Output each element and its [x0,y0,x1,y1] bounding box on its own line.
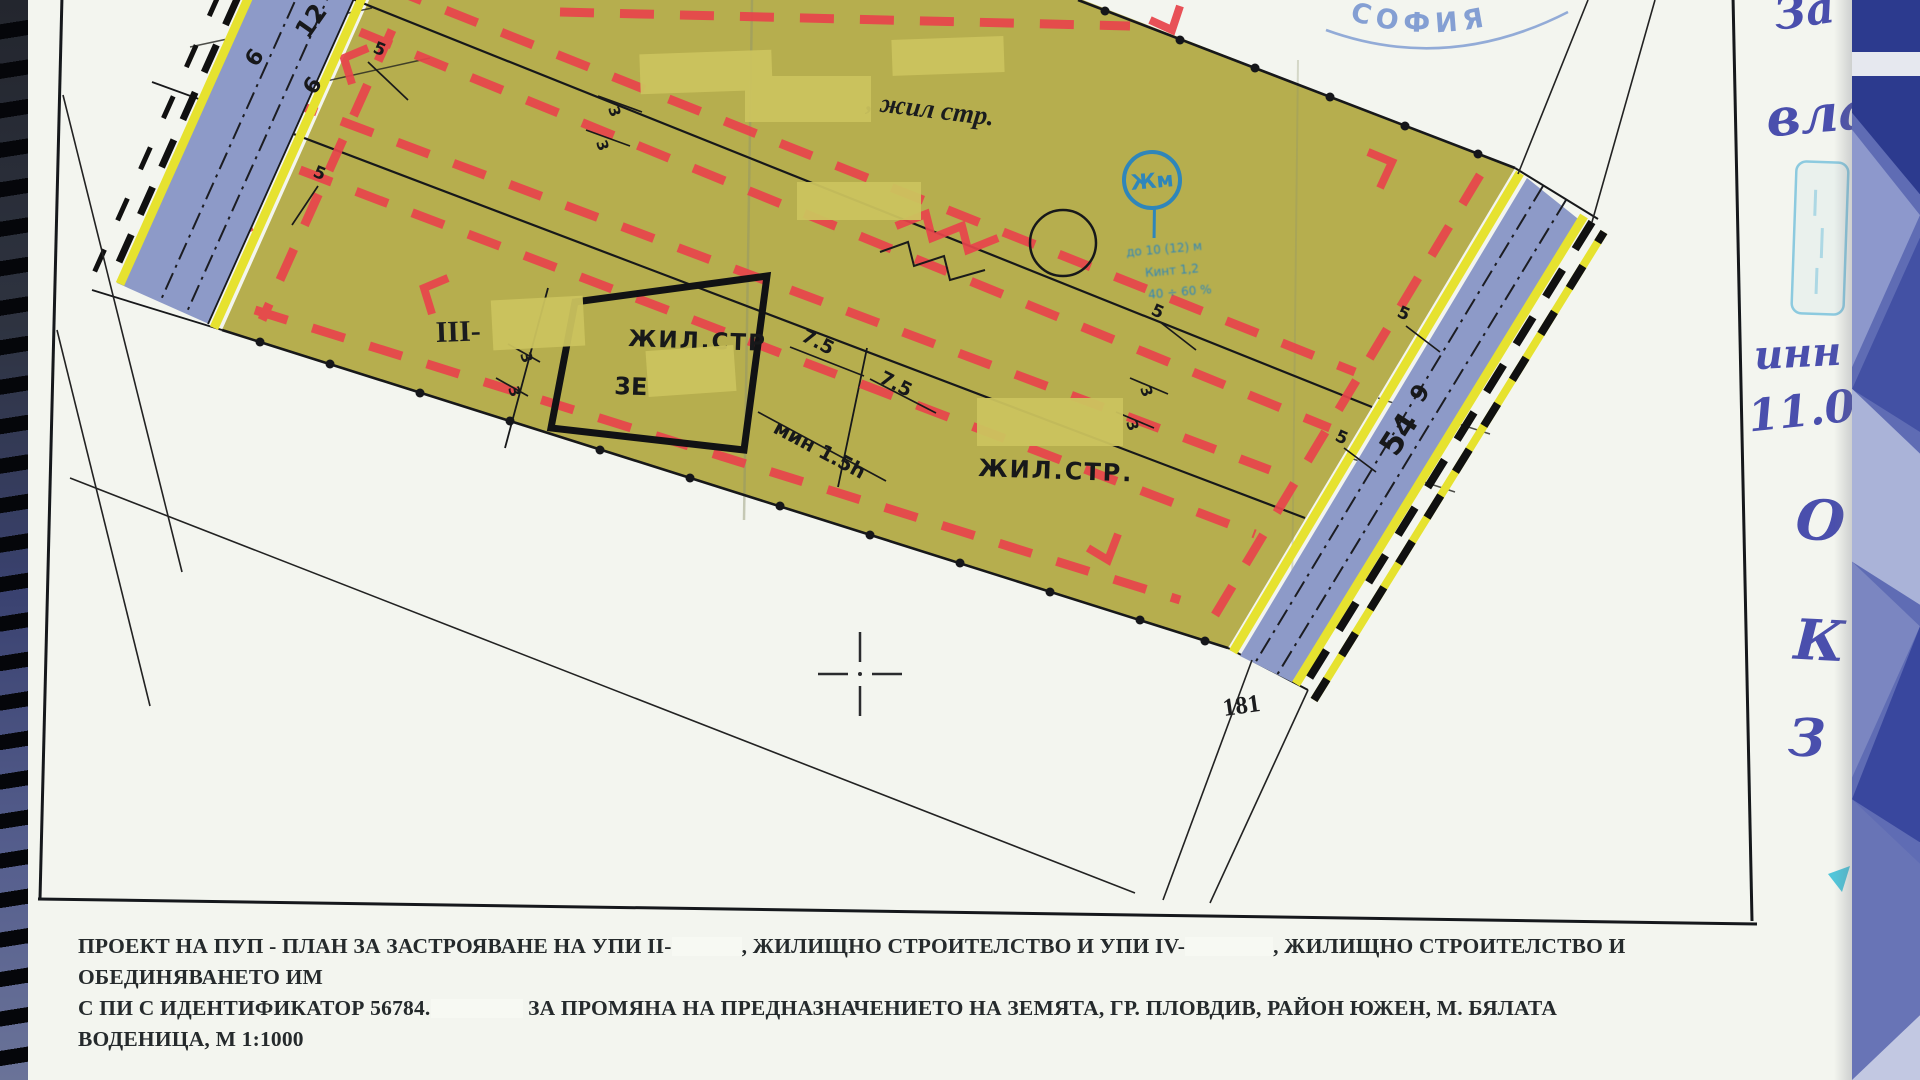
caption-1a: ПРОЕКТ НА ПУП - ПЛАН ЗА ЗАСТРОЯВАНЕ НА У… [78,934,672,958]
crosshair [818,632,902,716]
caption-2a: С ПИ С ИДЕНТИФИКАТОР 56784. [78,996,431,1020]
plot-181-label: 181 [1221,690,1262,722]
caption-1b: , ЖИЛИЩНО СТРОИТЕЛСТВО И УПИ IV- [742,934,1186,958]
caption-redaction-1 [672,937,742,956]
sofia-stamp-text: СОФИЯ [1348,0,1492,39]
folder-background [1852,0,1920,1080]
caption-line-1: ПРОЕКТ НА ПУП - ПЛАН ЗА ЗАСТРОЯВАНЕ НА У… [78,931,1668,993]
caption-redaction-2 [1185,937,1273,956]
sofia-stamp: СОФИЯ [1326,0,1568,48]
lower-zhil-str-label: ЖИЛ.СТР. [978,454,1134,487]
parcel-iii-label: III- [435,314,481,349]
binding-spine [0,0,28,1080]
building-floors-label: 3Е [614,372,648,401]
paper-fold-shadow [1834,0,1852,1080]
site-plan: 12 6 6 9 54 [0,0,1920,1080]
caption-redaction-3 [431,999,523,1018]
caption-line-2: С ПИ С ИДЕНТИФИКАТОР 56784. ЗА ПРОМЯНА Н… [78,993,1668,1055]
handwriting-note-7: З [1787,708,1826,770]
svg-text:СОФИЯ: СОФИЯ [1348,0,1492,39]
caption: ПРОЕКТ НА ПУП - ПЛАН ЗА ЗАСТРОЯВАНЕ НА У… [78,931,1668,1055]
handwriting-note-3: инн [1753,328,1843,380]
folder-white-bar [1852,52,1920,76]
zone-stamp-symbol: Жм [1130,167,1175,195]
